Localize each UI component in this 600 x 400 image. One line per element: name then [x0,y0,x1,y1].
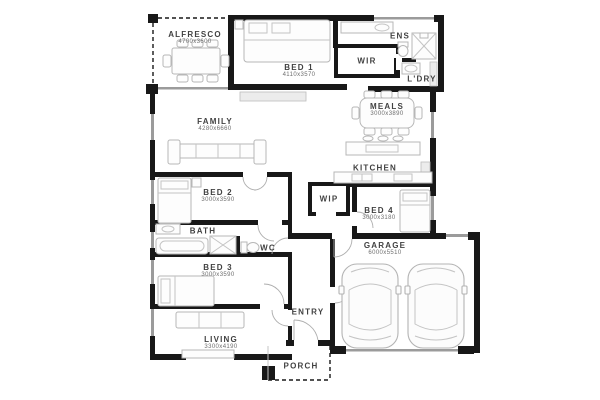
kitchen-island [346,136,420,155]
floor-plan: ALFRESCO 4700x3600 BED 1 4110x3570 ENS W… [0,0,600,400]
wc-toilet [241,242,259,253]
meals-table [352,91,422,135]
family-sofa [168,140,266,164]
garage-car-right [405,264,467,348]
bed1-furniture [235,20,330,62]
living-sofa [176,312,244,358]
ensuite-fixtures [341,22,436,59]
kitchen-bench [334,172,432,183]
bed2-furniture [158,178,201,223]
bed3-furniture [158,276,214,306]
laundry-fixtures [402,63,420,74]
garage-car-left [339,264,401,348]
bath-fixtures [156,224,236,254]
alfresco-table [163,40,229,82]
bed4-furniture [400,190,430,232]
floor-plan-drawing [0,0,600,400]
